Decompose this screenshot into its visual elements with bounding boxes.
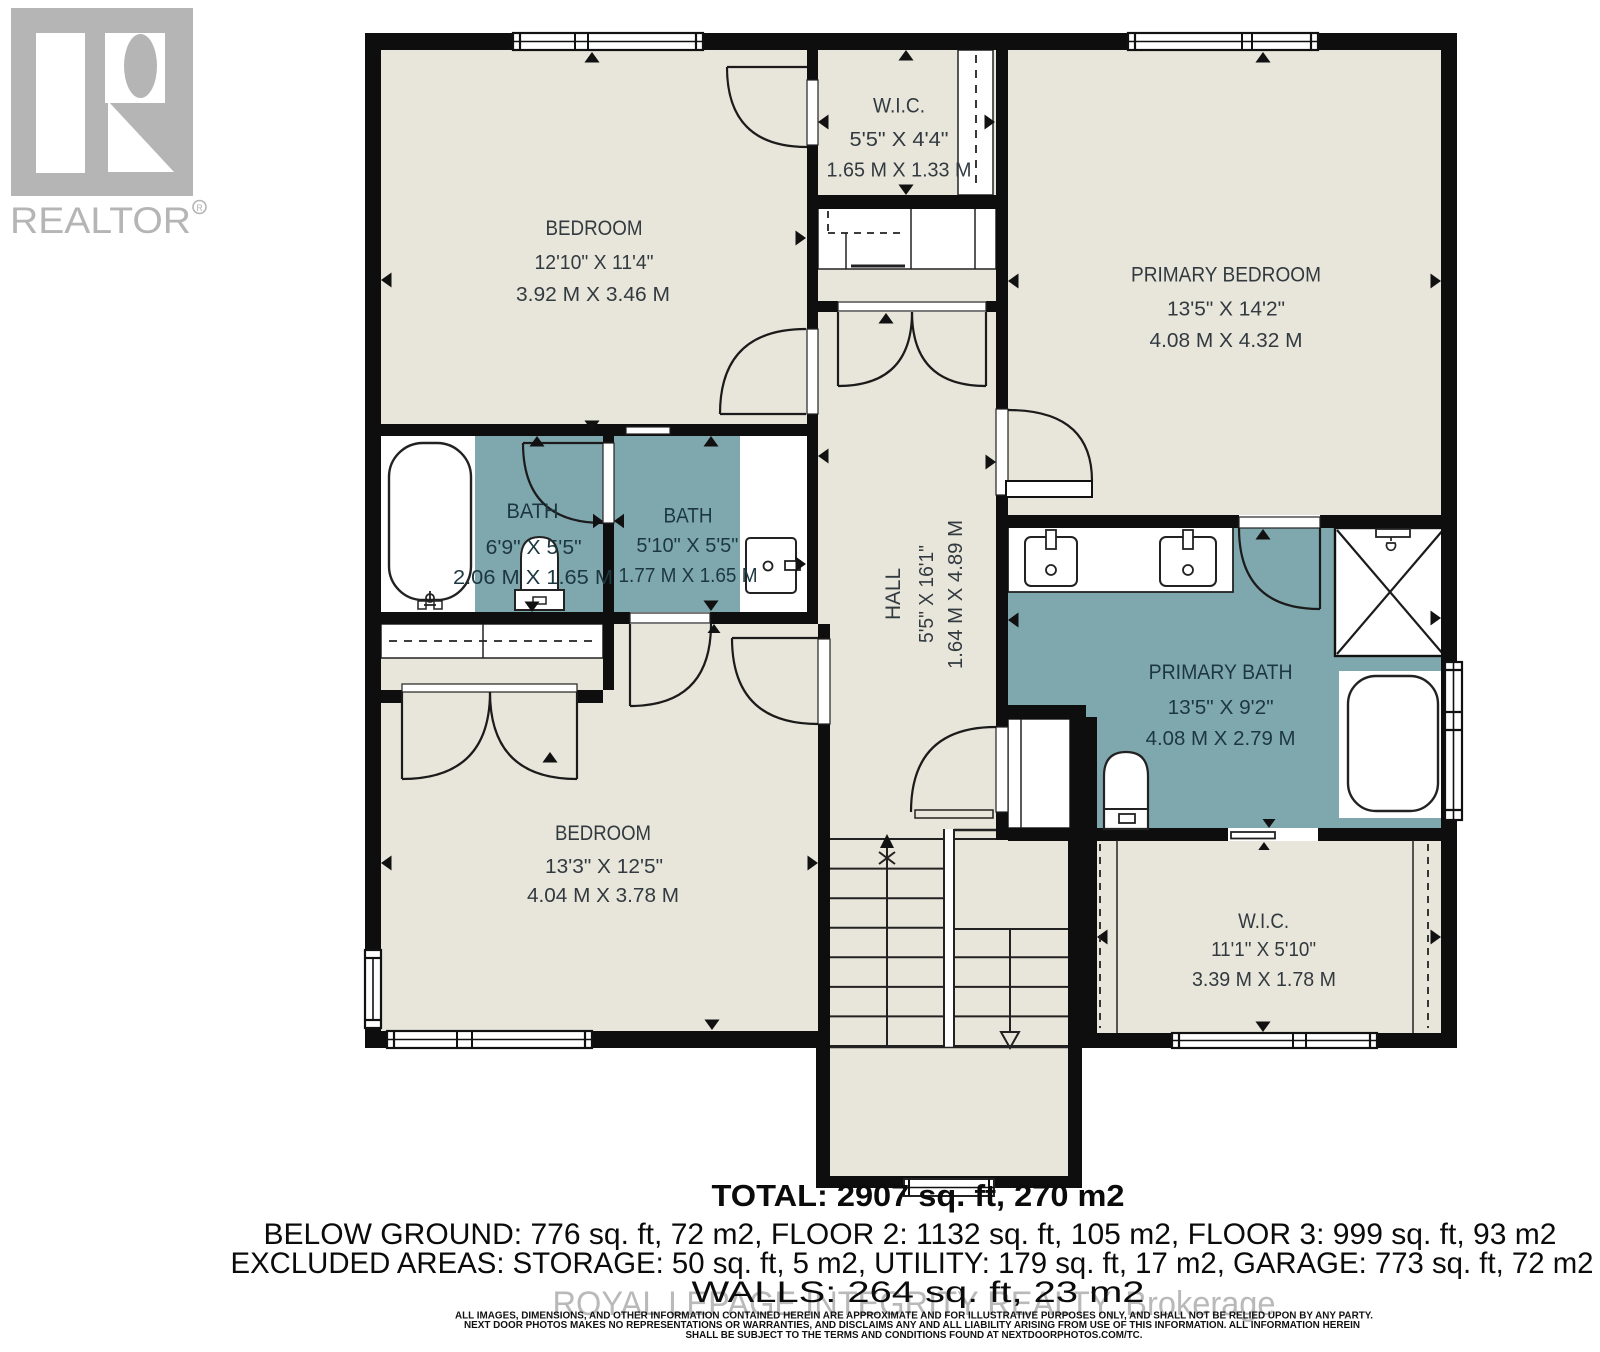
svg-text:HALL: HALL — [882, 568, 905, 620]
svg-text:5'5" X 4'4": 5'5" X 4'4" — [850, 129, 949, 151]
svg-text:4.08 M X 2.79 M: 4.08 M X 2.79 M — [1146, 728, 1296, 750]
svg-text:R: R — [196, 203, 203, 213]
svg-text:13'5" X 9'2": 13'5" X 9'2" — [1168, 697, 1274, 719]
svg-text:W.I.C.: W.I.C. — [1238, 910, 1289, 933]
svg-text:TOTAL: 2907 sq. ft, 270 m2: TOTAL: 2907 sq. ft, 270 m2 — [712, 1178, 1125, 1213]
svg-text:BATH: BATH — [507, 500, 559, 523]
svg-text:SHALL BE SUBJECT TO THE TERMS: SHALL BE SUBJECT TO THE TERMS AND CONDIT… — [686, 1329, 1143, 1341]
svg-text:1.64 M X 4.89 M: 1.64 M X 4.89 M — [945, 520, 967, 669]
svg-text:4.08 M X 4.32 M: 4.08 M X 4.32 M — [1150, 330, 1303, 352]
svg-text:2.06 M X 1.65 M: 2.06 M X 1.65 M — [453, 567, 613, 589]
svg-text:BEDROOM: BEDROOM — [555, 822, 651, 845]
svg-text:13'5" X 14'2": 13'5" X 14'2" — [1167, 299, 1285, 321]
svg-text:PRIMARY BATH: PRIMARY BATH — [1149, 661, 1293, 684]
svg-text:BATH: BATH — [664, 505, 713, 528]
svg-text:5'10" X 5'5": 5'10" X 5'5" — [636, 535, 738, 557]
svg-text:6'9" X 5'5": 6'9" X 5'5" — [486, 537, 582, 559]
svg-text:13'3" X 12'5": 13'3" X 12'5" — [545, 856, 663, 878]
svg-text:W.I.C.: W.I.C. — [873, 95, 925, 118]
svg-text:3.92 M X 3.46 M: 3.92 M X 3.46 M — [516, 284, 670, 306]
svg-text:REALTOR: REALTOR — [10, 200, 191, 241]
svg-text:1.77 M X 1.65 M: 1.77 M X 1.65 M — [619, 565, 758, 587]
svg-text:PRIMARY BEDROOM: PRIMARY BEDROOM — [1131, 264, 1321, 287]
svg-text:12'10" X 11'4": 12'10" X 11'4" — [535, 252, 654, 274]
svg-text:3.39 M X 1.78 M: 3.39 M X 1.78 M — [1192, 969, 1336, 991]
svg-text:11'1" X 5'10": 11'1" X 5'10" — [1211, 939, 1316, 961]
svg-text:WALLS: 264 sq. ft, 23 m2: WALLS: 264 sq. ft, 23 m2 — [692, 1276, 1145, 1309]
svg-text:5'5" X 16'1": 5'5" X 16'1" — [916, 545, 938, 643]
svg-text:4.04 M X 3.78 M: 4.04 M X 3.78 M — [527, 885, 679, 907]
svg-text:BEDROOM: BEDROOM — [546, 217, 643, 240]
svg-text:1.65 M X 1.33 M: 1.65 M X 1.33 M — [827, 160, 972, 182]
